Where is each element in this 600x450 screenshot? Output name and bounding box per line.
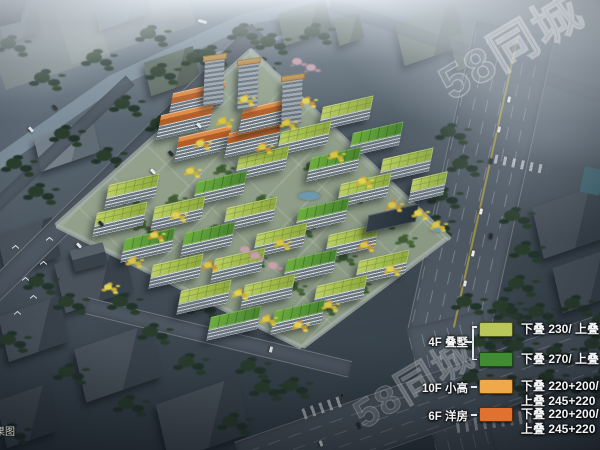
legend-swatch-yellow-green bbox=[479, 322, 513, 337]
legend-swatch-green bbox=[479, 352, 513, 367]
legend-bracket bbox=[472, 359, 477, 361]
legend-text: 下叠 230/ 上叠 265 bbox=[521, 322, 600, 337]
legend-text-line2: 上叠 245+220 bbox=[521, 422, 600, 437]
legend-bracket bbox=[472, 326, 474, 360]
legend-text: 下叠 220+200/ 平层 上叠 245+220 bbox=[521, 407, 600, 437]
legend-text: 下叠 220+200/ 平层 上叠 245+220 bbox=[521, 379, 600, 409]
legend-text-line1: 下叠 220+200/ 平层 bbox=[521, 379, 600, 394]
legend-bracket bbox=[472, 326, 477, 328]
legend-label-4f-dieshu: 4F 叠墅 bbox=[420, 334, 468, 350]
legend-swatch-dark-orange bbox=[479, 407, 513, 422]
aerial-render-image: 58同城 58同城 效果图 4F 叠墅 下叠 230/ 上叠 265 下叠 27… bbox=[0, 0, 600, 450]
legend-bracket bbox=[465, 341, 472, 343]
legend-dash bbox=[471, 386, 477, 388]
legend: 4F 叠墅 下叠 230/ 上叠 265 下叠 270/ 上叠 300 10F … bbox=[0, 0, 600, 450]
legend-label-6f-yangfang: 6F 洋房 bbox=[420, 408, 468, 424]
legend-text: 下叠 270/ 上叠 300 bbox=[521, 352, 600, 367]
legend-swatch-orange bbox=[479, 379, 513, 394]
legend-text-line1: 下叠 220+200/ 平层 bbox=[521, 407, 600, 422]
legend-dash bbox=[471, 414, 477, 416]
legend-label-10f-xiaogao: 10F 小高 bbox=[420, 380, 468, 396]
